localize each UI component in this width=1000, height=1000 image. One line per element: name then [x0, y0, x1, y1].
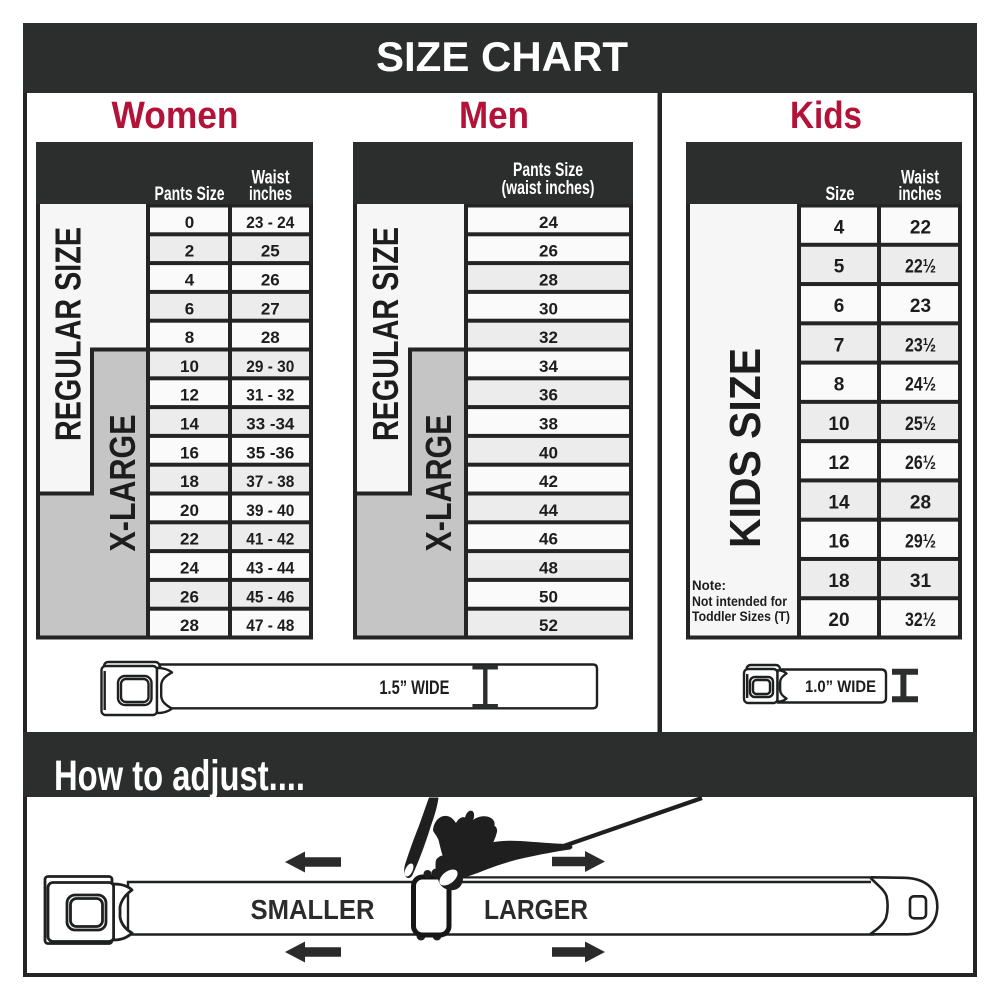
svg-text:31: 31 [910, 571, 932, 592]
svg-text:23: 23 [910, 296, 931, 317]
svg-text:39 - 40: 39 - 40 [246, 501, 294, 520]
svg-text:31 - 32: 31 - 32 [246, 386, 294, 405]
svg-text:Women: Women [112, 95, 239, 137]
svg-text:28: 28 [910, 492, 931, 513]
svg-text:24½: 24½ [905, 375, 936, 396]
svg-text:32: 32 [539, 328, 558, 347]
svg-text:7: 7 [834, 335, 845, 356]
svg-text:16: 16 [180, 443, 199, 462]
svg-text:10: 10 [828, 414, 849, 435]
svg-text:45 - 46: 45 - 46 [246, 587, 294, 606]
svg-text:6: 6 [185, 299, 194, 318]
svg-text:Not intended for: Not intended for [692, 593, 787, 609]
svg-text:4: 4 [834, 217, 845, 238]
svg-text:23 - 24: 23 - 24 [246, 213, 294, 232]
svg-text:Size: Size [826, 184, 855, 205]
svg-text:28: 28 [180, 616, 199, 635]
svg-text:42: 42 [539, 472, 558, 491]
svg-text:14: 14 [828, 492, 850, 513]
svg-text:29 - 30: 29 - 30 [246, 357, 294, 376]
svg-text:LARGER: LARGER [484, 894, 588, 925]
svg-text:33 -34: 33 -34 [246, 415, 295, 434]
svg-text:22½: 22½ [905, 257, 936, 278]
svg-text:0: 0 [185, 213, 194, 232]
svg-text:20: 20 [828, 610, 849, 631]
svg-text:23½: 23½ [905, 335, 936, 356]
svg-text:30: 30 [539, 299, 558, 318]
svg-text:47 - 48: 47 - 48 [246, 616, 294, 635]
svg-text:26: 26 [261, 271, 280, 290]
svg-text:8: 8 [185, 328, 194, 347]
svg-text:8: 8 [834, 375, 845, 396]
svg-text:25: 25 [261, 242, 280, 261]
svg-text:12: 12 [180, 386, 199, 405]
svg-text:inches: inches [249, 184, 292, 205]
svg-text:28: 28 [261, 328, 280, 347]
svg-text:1.5” WIDE: 1.5” WIDE [379, 678, 449, 699]
svg-text:24: 24 [180, 559, 199, 578]
svg-text:6: 6 [834, 296, 845, 317]
svg-text:29½: 29½ [905, 532, 936, 553]
svg-text:Note:: Note: [692, 577, 726, 593]
svg-text:18: 18 [180, 472, 199, 491]
svg-text:KIDS SIZE: KIDS SIZE [721, 348, 770, 548]
svg-text:48: 48 [539, 559, 558, 578]
svg-text:52: 52 [539, 616, 558, 635]
svg-text:24: 24 [539, 213, 558, 232]
svg-text:38: 38 [539, 415, 558, 434]
svg-text:X-LARGE: X-LARGE [102, 415, 143, 552]
svg-text:37 - 38: 37 - 38 [246, 472, 294, 491]
svg-text:28: 28 [539, 271, 558, 290]
svg-text:32½: 32½ [905, 610, 936, 631]
svg-text:(waist inches): (waist inches) [502, 178, 595, 199]
svg-text:REGULAR SIZE: REGULAR SIZE [48, 227, 89, 441]
svg-text:27: 27 [261, 299, 280, 318]
svg-text:REGULAR SIZE: REGULAR SIZE [365, 227, 406, 441]
svg-text:14: 14 [180, 415, 199, 434]
svg-text:26½: 26½ [905, 453, 936, 474]
svg-text:43 - 44: 43 - 44 [246, 559, 294, 578]
svg-text:How to adjust....: How to adjust.... [54, 752, 305, 800]
svg-text:20: 20 [180, 501, 199, 520]
svg-text:5: 5 [834, 257, 845, 278]
svg-text:44: 44 [539, 501, 558, 520]
svg-text:X-LARGE: X-LARGE [418, 415, 459, 552]
svg-text:12: 12 [828, 453, 849, 474]
svg-text:36: 36 [539, 386, 558, 405]
svg-text:22: 22 [910, 217, 931, 238]
svg-text:SIZE CHART: SIZE CHART [376, 33, 628, 80]
svg-text:40: 40 [539, 443, 558, 462]
svg-text:Pants Size: Pants Size [155, 184, 225, 205]
svg-text:41 - 42: 41 - 42 [246, 530, 294, 549]
svg-text:25½: 25½ [905, 414, 936, 435]
svg-text:4: 4 [185, 271, 195, 290]
svg-text:SMALLER: SMALLER [251, 894, 375, 925]
svg-text:10: 10 [180, 357, 199, 376]
svg-text:inches: inches [899, 184, 942, 205]
svg-text:46: 46 [539, 530, 558, 549]
svg-text:22: 22 [180, 530, 199, 549]
svg-text:1.0” WIDE: 1.0” WIDE [805, 678, 876, 696]
svg-text:16: 16 [828, 532, 849, 553]
svg-text:2: 2 [185, 242, 194, 261]
svg-text:18: 18 [828, 571, 849, 592]
svg-text:Kids: Kids [790, 95, 862, 137]
svg-text:35 -36: 35 -36 [246, 443, 294, 462]
svg-text:Men: Men [459, 95, 529, 137]
svg-text:26: 26 [180, 587, 199, 606]
svg-text:26: 26 [539, 242, 558, 261]
svg-text:Toddler Sizes (T): Toddler Sizes (T) [692, 608, 790, 624]
svg-text:50: 50 [539, 587, 558, 606]
svg-text:34: 34 [539, 357, 558, 376]
